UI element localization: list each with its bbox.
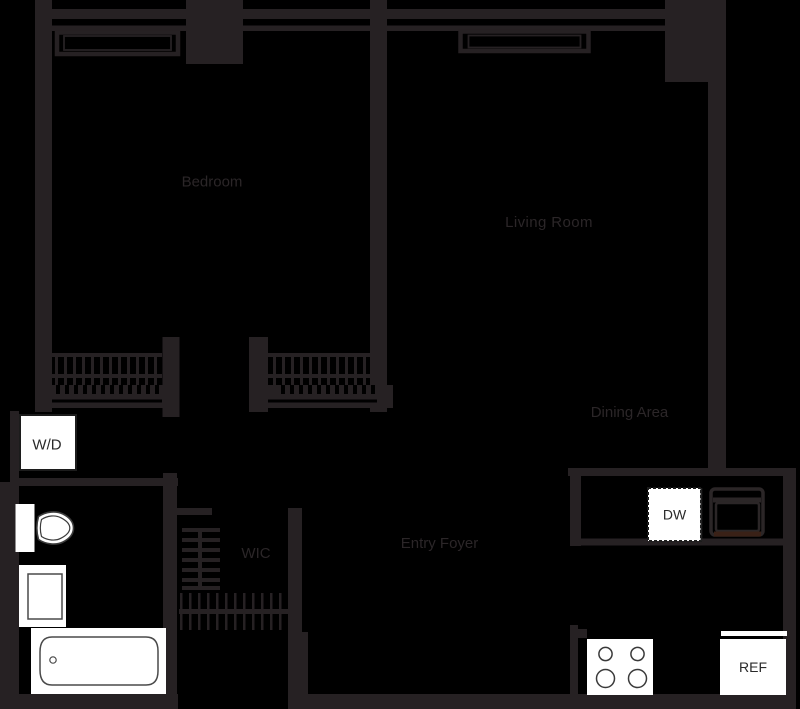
svg-text:W/D: W/D xyxy=(32,437,61,454)
svg-text:Dining Area: Dining Area xyxy=(591,404,669,421)
svg-text:DW: DW xyxy=(663,507,687,523)
svg-text:WIC: WIC xyxy=(241,545,270,562)
svg-text:Entry Foyer: Entry Foyer xyxy=(401,535,479,552)
svg-text:Living Room: Living Room xyxy=(505,214,593,231)
svg-text:REF: REF xyxy=(739,659,767,675)
svg-text:Bedroom: Bedroom xyxy=(182,174,243,191)
